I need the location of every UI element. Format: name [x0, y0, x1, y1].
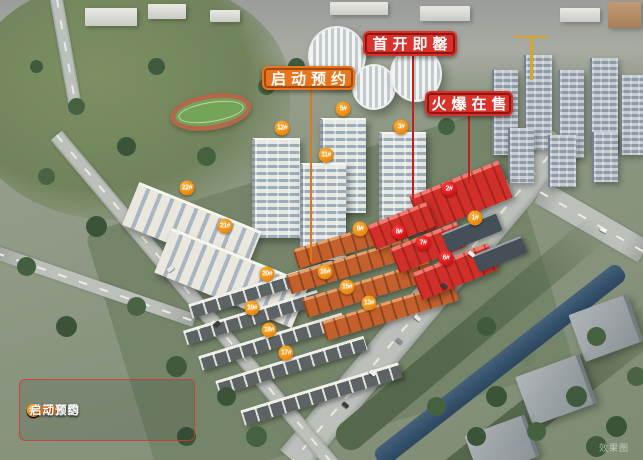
building-badge-9[interactable]: 9#	[353, 222, 368, 237]
callout-hot-selling[interactable]: 火爆在售	[425, 91, 513, 116]
building-badge-21[interactable]: 21#	[218, 219, 233, 234]
building-badge-13[interactable]: 13#	[362, 296, 377, 311]
building-badge-5[interactable]: 5#	[336, 102, 351, 117]
leader-line-hot-selling	[468, 116, 470, 183]
building-badge-17[interactable]: 17#	[279, 346, 294, 361]
building-badge-6[interactable]: 6#	[439, 251, 454, 266]
building-badge-15[interactable]: 15#	[340, 280, 355, 295]
aerial-site-plan: 5#12#3#11#22#2#1#21#9#8#7#6#16#20#15#13#…	[0, 0, 643, 460]
building-badge-20[interactable]: 20#	[260, 267, 275, 282]
building-badge-8[interactable]: 8#	[392, 225, 407, 240]
building-badge-16[interactable]: 16#	[318, 265, 333, 280]
leader-line-first-open-sold-out	[412, 56, 414, 199]
building-badge-22[interactable]: 22#	[180, 181, 195, 196]
building-badge-12[interactable]: 12#	[275, 121, 290, 136]
building-badge-18[interactable]: 18#	[262, 323, 277, 338]
leader-line-reservation-started	[310, 90, 312, 262]
callout-reservation-started[interactable]: 启动预约	[262, 66, 355, 90]
building-badge-11[interactable]: 11#	[319, 148, 334, 163]
building-badge-7[interactable]: 7#	[416, 236, 431, 251]
legend-label: 启动预约	[30, 402, 80, 418]
legend: 2#火爆在售 6#7#8#首开即罄 9#13#15#16#启动预约	[19, 379, 195, 441]
building-badge-3[interactable]: 3#	[394, 120, 409, 135]
building-badge-2[interactable]: 2#	[442, 182, 457, 197]
building-badge-1[interactable]: 1#	[468, 211, 483, 226]
callout-first-open-sold-out[interactable]: 首开即罄	[363, 31, 457, 56]
building-badge-19[interactable]: 19#	[245, 301, 260, 316]
watermark-label: 效果图	[599, 441, 629, 454]
